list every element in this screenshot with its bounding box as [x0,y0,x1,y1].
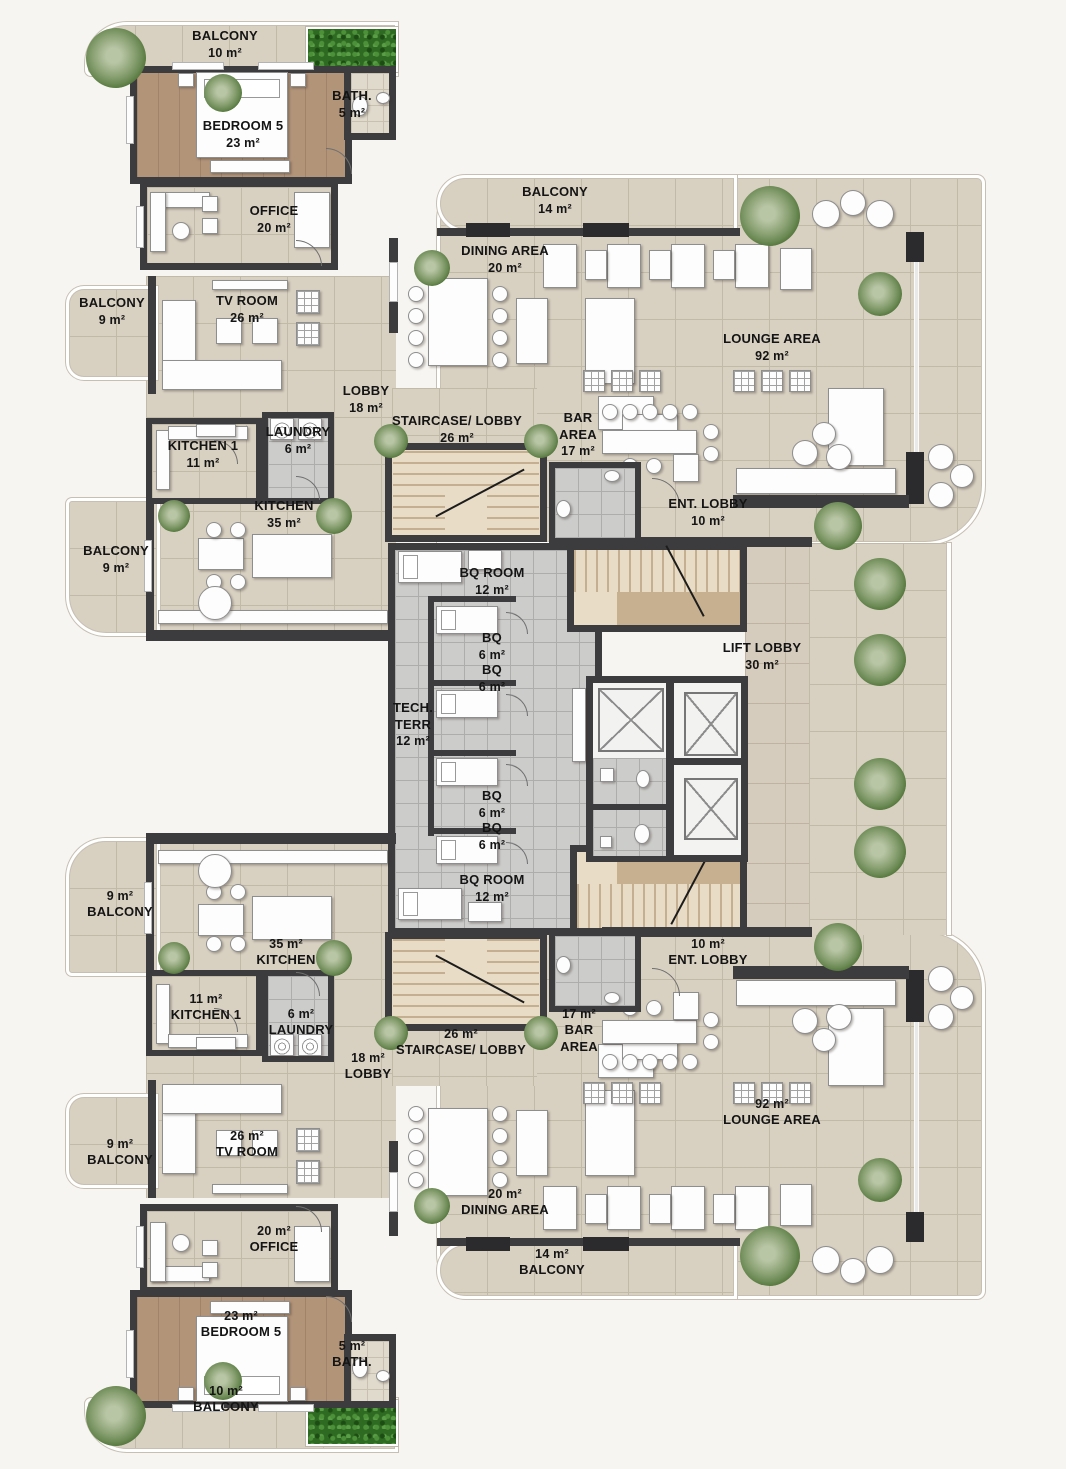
room-label-entlobby-bottom: ENT. LOBBY10 m² [668,936,747,969]
room-area: 17 m² [561,443,595,459]
kitchen-island [252,896,332,940]
wall-segment [148,276,156,394]
sink [600,768,614,782]
room-area: 14 m² [535,1246,569,1262]
room-area: 20 m² [488,260,522,276]
round-table [198,854,232,888]
room-label-bq1: BQ6 m² [479,630,506,663]
dining-chair [492,330,508,346]
kitchen-table [198,904,244,936]
lounger [607,1186,641,1230]
bar-stool [642,404,658,420]
office-chair [172,1234,190,1252]
sink [376,1370,390,1382]
room-area: 26 m² [230,1128,264,1144]
kitchen-counter [158,850,388,864]
window [258,62,314,70]
plant [86,28,146,88]
stair-treads [577,884,740,928]
round-table [812,422,836,446]
kitchen-counter [158,610,388,624]
room-name: BAR AREA [550,410,606,443]
plant [740,1226,800,1286]
room-name: LOUNGE AREA [723,331,821,348]
wall-post [906,1212,924,1242]
coffee-table [639,1082,661,1104]
room-name: TV ROOM [216,1144,278,1161]
room-area: 6 m² [479,647,506,663]
window [126,96,134,144]
wall-segment [593,804,666,810]
room-name: LIFT LOBBY [723,640,802,657]
nightstand [290,73,306,87]
bar-counter [673,992,699,1020]
kitchen-table [198,538,244,570]
room-name: TECH. TERR [387,700,439,733]
dining-chair [492,352,508,368]
coffee-table [733,370,755,392]
dining-chair [408,352,424,368]
wall-segment [674,758,744,765]
bench [516,1110,548,1176]
lift-shaft [598,688,664,752]
room-label-kitchen1-top: KITCHEN 111 m² [168,438,238,471]
window [126,1330,134,1378]
room-area: 6 m² [479,837,506,853]
room-label-bqroom-bottom: BQ ROOM12 m² [460,872,525,905]
side-table [713,250,735,280]
room-area: 5 m² [339,1338,366,1354]
room-area: 9 m² [99,312,126,328]
room-label-balcony9-bottom-upper: BALCONY9 m² [87,888,153,921]
bench [516,298,548,364]
dining-chair [492,1150,508,1166]
stool [206,936,222,952]
dining-chair [408,308,424,324]
bar-stool [662,404,678,420]
room-area: 23 m² [224,1308,258,1324]
window [258,1404,314,1412]
room-name: KITCHEN 1 [171,1007,241,1024]
window [136,206,144,248]
room-area: 9 m² [107,888,134,904]
stool [230,574,246,590]
toilet [634,824,650,844]
stair-treads [574,550,740,592]
plant [158,500,190,532]
glass-partition [915,999,918,1234]
room-area: 6 m² [285,441,312,457]
coffee-table [296,1128,320,1152]
room-area: 20 m² [257,220,291,236]
coffee-table [639,370,661,392]
bar-stool [703,424,719,440]
tv-board [212,280,288,290]
sink [604,470,620,482]
room-label-laundry-top: LAUNDRY6 m² [266,424,330,457]
tv-board [212,1184,288,1194]
side-table [585,1194,607,1224]
room-area: 17 m² [562,1006,596,1022]
room-name: ENT. LOBBY [668,952,747,969]
bar-stool [622,1054,638,1070]
room-area: 92 m² [755,1096,789,1112]
tub-chair [792,440,818,466]
room-name: BALCONY [193,1399,259,1416]
tub-chair [866,200,894,228]
sink [600,836,612,848]
tub-chair [928,482,954,508]
round-table [198,586,232,620]
room-label-bq3: BQ6 m² [479,788,506,821]
room-area: 10 m² [208,45,242,61]
sofa [162,1084,282,1114]
room-name: KITCHEN [254,498,313,515]
bar-stool [703,1012,719,1028]
kitchenette [572,688,586,762]
lounger [780,248,812,290]
window [389,1172,398,1212]
room-area: 26 m² [440,430,474,446]
kitchen-island [252,534,332,578]
room-name: KITCHEN [256,952,315,969]
bar-stool [642,1054,658,1070]
plant [854,826,906,878]
room-name: BQ [482,788,502,805]
plant [86,1386,146,1446]
tub-chair [826,444,852,470]
dining-table [428,1108,488,1196]
round-table [950,464,974,488]
room-area: 12 m² [475,889,509,905]
plant [854,758,906,810]
plant [158,942,190,974]
bar-stool [662,1054,678,1070]
plant [858,272,902,316]
guest-chair [202,1262,218,1278]
stair-landing [445,491,487,535]
stair-treads [393,939,445,1023]
wall-post [906,232,924,262]
window [389,262,398,302]
bar-counter [673,454,699,482]
toilet [556,956,571,974]
room-label-techterr: TECH. TERR12 m² [387,700,439,749]
plant [740,186,800,246]
room-label-lounge-top: LOUNGE AREA92 m² [723,331,821,364]
lounger [735,244,769,288]
floor-plan: BALCONY10 m² BEDROOM 523 m² BATH.5 m² OF… [0,0,1066,1469]
room-label-bath-top: BATH.5 m² [332,88,372,121]
room-name: LAUNDRY [269,1022,333,1039]
wardrobe [468,902,502,922]
floor-slab-lift-lobby [745,543,809,935]
room-label-bedroom5-top: BEDROOM 523 m² [203,118,284,151]
tub-chair [928,966,954,992]
sofa-back-wall [733,495,909,508]
coffee-table [789,370,811,392]
room-area: 9 m² [107,1136,134,1152]
office-desk [150,192,166,252]
nightstand [178,73,194,87]
room-name: KITCHEN 1 [168,438,238,455]
wall-post [583,223,629,237]
room-label-bath-bottom: BATH.5 m² [332,1338,372,1371]
round-table [812,1028,836,1052]
room-area: 23 m² [226,135,260,151]
coffee-table [761,370,783,392]
dining-chair [408,330,424,346]
room-name: BQ ROOM [460,872,525,889]
bq-bed [436,758,498,786]
dining-chair [408,286,424,302]
room-label-bedroom5-bottom: BEDROOM 523 m² [201,1308,282,1341]
room-label-lounge-bottom: LOUNGE AREA92 m² [723,1096,821,1129]
room-label-office-top: OFFICE20 m² [250,203,299,236]
room-area: 10 m² [209,1383,243,1399]
room-area: 26 m² [444,1026,478,1042]
room-name: ENT. LOBBY [668,496,747,513]
coffee-table [583,1082,605,1104]
bar-stool [646,1000,662,1016]
room-label-kitchen1-bottom: KITCHEN 111 m² [171,991,241,1024]
dining-chair [408,1106,424,1122]
dining-chair [492,1106,508,1122]
room-name: BEDROOM 5 [203,118,284,135]
room-name: LOBBY [345,1066,392,1083]
tub-chair [866,1246,894,1274]
room-name: BALCONY [83,543,149,560]
right-terrace-railing [947,543,951,935]
tub-chair [826,1004,852,1030]
room-label-dining-top: DINING AREA20 m² [461,243,549,276]
room-name: BALCONY [79,295,145,312]
guest-chair [202,196,218,212]
dining-chair [408,1172,424,1188]
room-label-balcony10-bottom: BALCONY10 m² [193,1383,259,1416]
bq-bed [398,888,462,920]
coffee-table [296,290,320,314]
room-label-dining-bottom: DINING AREA20 m² [461,1186,549,1219]
room-label-balcony9-top-upper: BALCONY9 m² [79,295,145,328]
round-table [950,986,974,1010]
sofa [736,468,896,494]
sofa-back-wall [733,966,909,979]
room-name: BALCONY [87,904,153,921]
wall-post [466,223,510,237]
stove [196,1037,236,1050]
room-area: 26 m² [230,310,264,326]
side-table [649,1194,671,1224]
room-label-staircase-top: STAIRCASE/ LOBBY26 m² [392,413,522,446]
room-area: 35 m² [267,515,301,531]
room-name: LOUNGE AREA [723,1112,821,1129]
sink [376,92,390,104]
coffee-table [296,1160,320,1184]
room-area: 11 m² [187,455,220,471]
bar-stool [703,1034,719,1050]
room-name: BATH. [332,88,372,105]
room-label-balcony10-top: BALCONY10 m² [192,28,258,61]
room-label-balcony14-bottom: BALCONY14 m² [519,1246,585,1279]
round-table [840,1258,866,1284]
wall-segment [430,750,516,756]
dining-chair [492,286,508,302]
guest-chair [202,218,218,234]
dining-chair [408,1150,424,1166]
dining-chair [408,1128,424,1144]
bar-counter [602,430,697,454]
lift-shaft [684,692,738,756]
bar-stool [703,446,719,462]
stool [230,936,246,952]
room-area: 12 m² [475,582,509,598]
side-table [585,250,607,280]
window [172,62,224,70]
dining-chair [492,1128,508,1144]
bar-counter [602,1020,697,1044]
office-desk [150,1222,166,1282]
stool [230,522,246,538]
stair-treads [487,939,539,1023]
tub-chair [812,200,840,228]
lounger [671,244,705,288]
room-name: OFFICE [250,1239,299,1256]
room-area: 18 m² [349,400,383,416]
room-label-balcony9-top-lower: BALCONY9 m² [83,543,149,576]
room-label-kitchen-bottom: KITCHEN35 m² [256,936,315,969]
room-area: 20 m² [257,1223,291,1239]
room-label-staircase-bottom: STAIRCASE/ LOBBY26 m² [396,1026,526,1059]
toilet [556,500,571,518]
room-name: BEDROOM 5 [201,1324,282,1341]
room-label-kitchen-top: KITCHEN35 m² [254,498,313,531]
room-area: 92 m² [755,348,789,364]
plant [858,1158,902,1202]
lounger [671,1186,705,1230]
stair-landing [617,592,740,625]
lounger [607,244,641,288]
lounger [780,1184,812,1226]
plant [854,634,906,686]
plant [204,74,242,112]
room-label-tvroom-top: TV ROOM26 m² [216,293,278,326]
sink [604,992,620,1004]
coffee-table [611,370,633,392]
room-label-bqroom-top: BQ ROOM12 m² [460,565,525,598]
room-label-bq4: BQ6 m² [479,820,506,853]
room-name: BQ [482,630,502,647]
guest-chair [202,1240,218,1256]
room-name: DINING AREA [461,243,549,260]
room-name: BAR AREA [551,1022,607,1055]
room-name: STAIRCASE/ LOBBY [392,413,522,430]
tub-chair [792,1008,818,1034]
lift-shaft [684,778,738,840]
room-label-liftlobby: LIFT LOBBY30 m² [723,640,802,673]
room-area: 11 m² [190,991,223,1007]
bar-stool [622,404,638,420]
room-name: BATH. [332,1354,372,1371]
room-area: 10 m² [691,513,725,529]
room-name: BALCONY [87,1152,153,1169]
nightstand [178,1387,194,1401]
stool [230,884,246,900]
dining-table [428,278,488,366]
plant [414,1188,450,1224]
room-label-office-bottom: OFFICE20 m² [250,1223,299,1256]
nightstand [290,1387,306,1401]
room-area: 6 m² [288,1006,315,1022]
coffee-table [611,1082,633,1104]
glass-partition [915,240,918,475]
room-label-bar-bottom: BAR AREA17 m² [551,1006,607,1055]
room-label-lobby-bottom: LOBBY18 m² [345,1050,392,1083]
room-name: BALCONY [192,28,258,45]
bar-stool [682,1054,698,1070]
office-cabinet [294,1226,330,1282]
room-name: DINING AREA [461,1202,549,1219]
dresser [210,160,290,173]
bar-stool [602,1054,618,1070]
round-table [840,190,866,216]
room-area: 6 m² [479,805,506,821]
stove [196,424,236,437]
plant [854,558,906,610]
lounger [735,1186,769,1230]
plant [814,502,862,550]
wall-post [583,1237,629,1251]
sofa [736,980,896,1006]
room-area: 6 m² [479,679,506,695]
tub-chair [928,1004,954,1030]
room-label-balcony14-top: BALCONY14 m² [522,184,588,217]
stair-treads [487,451,539,535]
wall-segment [146,630,396,641]
plant [316,940,352,976]
sofa [162,360,282,390]
room-name: TV ROOM [216,293,278,310]
room-name: BQ [482,662,502,679]
room-label-lobby-top: LOBBY18 m² [343,383,390,416]
stair-treads [445,451,487,491]
bar-stool [682,404,698,420]
plant [316,498,352,534]
room-area: 20 m² [488,1186,522,1202]
room-name: BQ [482,820,502,837]
wall-post [466,1237,510,1251]
stair-treads [445,983,487,1023]
room-area: 30 m² [745,657,779,673]
room-area: 12 m² [396,733,430,749]
room-area: 14 m² [538,201,572,217]
room-name: BALCONY [519,1262,585,1279]
wall-segment [666,683,674,857]
toilet [636,770,650,788]
room-label-bq2: BQ6 m² [479,662,506,695]
room-name: BALCONY [522,184,588,201]
coffee-table [296,322,320,346]
window [136,1226,144,1268]
room-area: 10 m² [691,936,725,952]
tub-chair [928,444,954,470]
plant [814,923,862,971]
room-name: OFFICE [250,203,299,220]
room-label-balcony9-bottom-lower: BALCONY9 m² [87,1136,153,1169]
side-table [713,1194,735,1224]
bq-bed [398,551,462,583]
office-chair [172,222,190,240]
